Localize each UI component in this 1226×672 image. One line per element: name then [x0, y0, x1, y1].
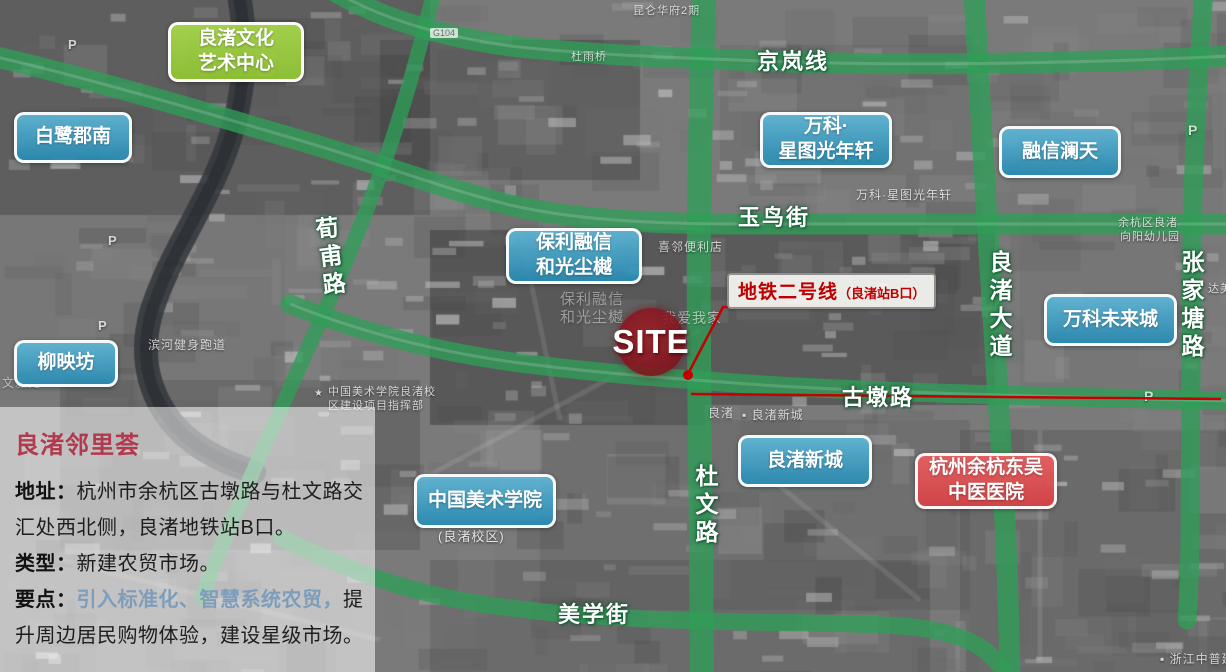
project-details: 地址：杭州市余杭区古墩路与杜文路交汇处西北侧，良渚地铁站B口。类型：新建农贸市场…: [15, 474, 363, 654]
info-panel-row: 类型：新建农贸市场。: [15, 546, 363, 582]
road-label-duwen-road: 杜文路: [688, 464, 722, 548]
road-label-meixue-street: 美学街: [558, 597, 630, 629]
road-label-liangzhu-avenue: 良渚大道: [982, 250, 1016, 362]
project-title: 良渚邻里荟: [15, 425, 363, 460]
road-label-jinglan-line: 京岚线: [757, 44, 829, 76]
metro-station-exit: （良渚站B口）: [838, 283, 925, 302]
info-panel-row: 地址：杭州市余杭区古墩路与杜文路交: [15, 474, 363, 510]
road-label-gudun-road: 古墩路: [842, 380, 914, 412]
info-panel-row: 要点：引入标准化、智慧系统农贸，提: [15, 582, 363, 618]
road-label-yuniao-street: 玉鸟街: [738, 200, 810, 232]
metro-line-name: 地铁二号线: [738, 277, 838, 304]
road-label-xunfu-road: 荀甫路: [307, 214, 351, 302]
metro-callout: 地铁二号线 （良渚站B口）: [727, 273, 936, 309]
info-panel-row: 升周边居民购物体验，建设星级市场。: [15, 618, 363, 654]
site-marker-label: SITE: [612, 323, 689, 361]
info-panel: 良渚邻里荟 地址：杭州市余杭区古墩路与杜文路交汇处西北侧，良渚地铁站B口。类型：…: [0, 407, 375, 672]
road-label-zhangjiatang-road: 张家塘路: [1174, 250, 1208, 362]
site-marker: SITE: [617, 308, 685, 376]
info-panel-row: 汇处西北侧，良渚地铁站B口。: [15, 510, 363, 546]
map-slide: 昆仑华府2期杜雨桥陆雨桥G104喜邻便利店保利融信和光尘樾我爱我家万科·星图光年…: [0, 0, 1226, 672]
